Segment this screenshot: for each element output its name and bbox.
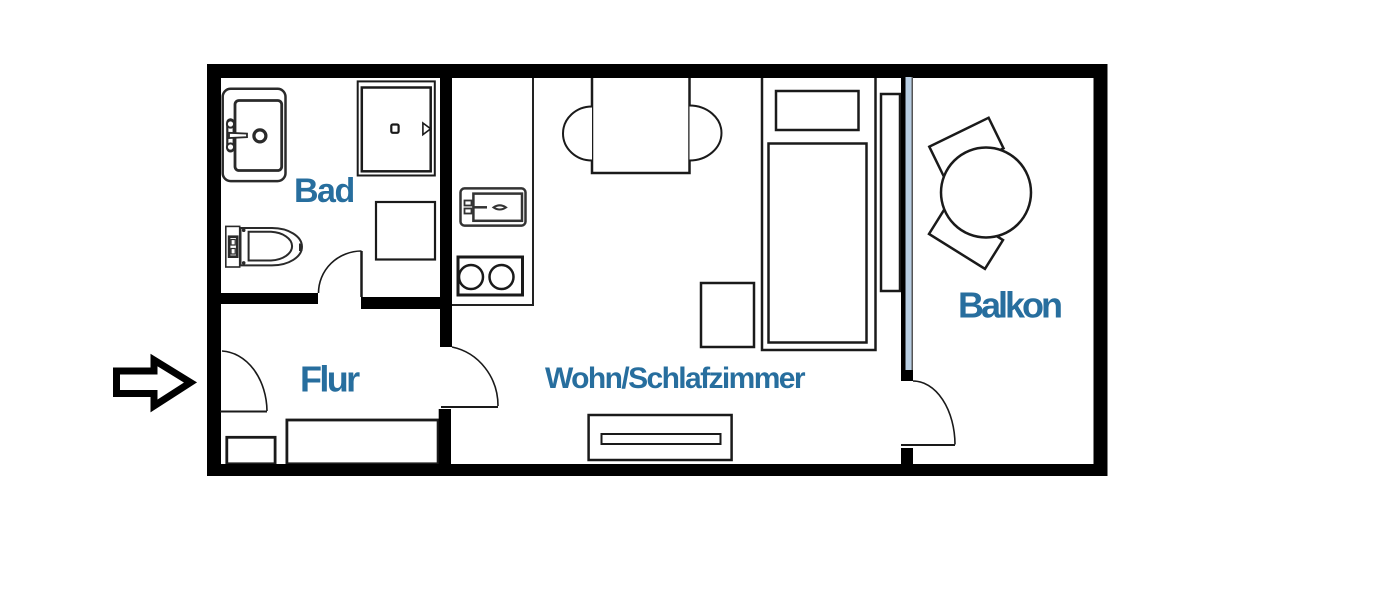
svg-text:Balkon: Balkon: [958, 285, 1061, 326]
svg-text:Bad: Bad: [294, 172, 354, 210]
svg-text:Flur: Flur: [300, 359, 360, 400]
svg-text:Wohn/Schlafzimmer: Wohn/Schlafzimmer: [545, 362, 806, 395]
